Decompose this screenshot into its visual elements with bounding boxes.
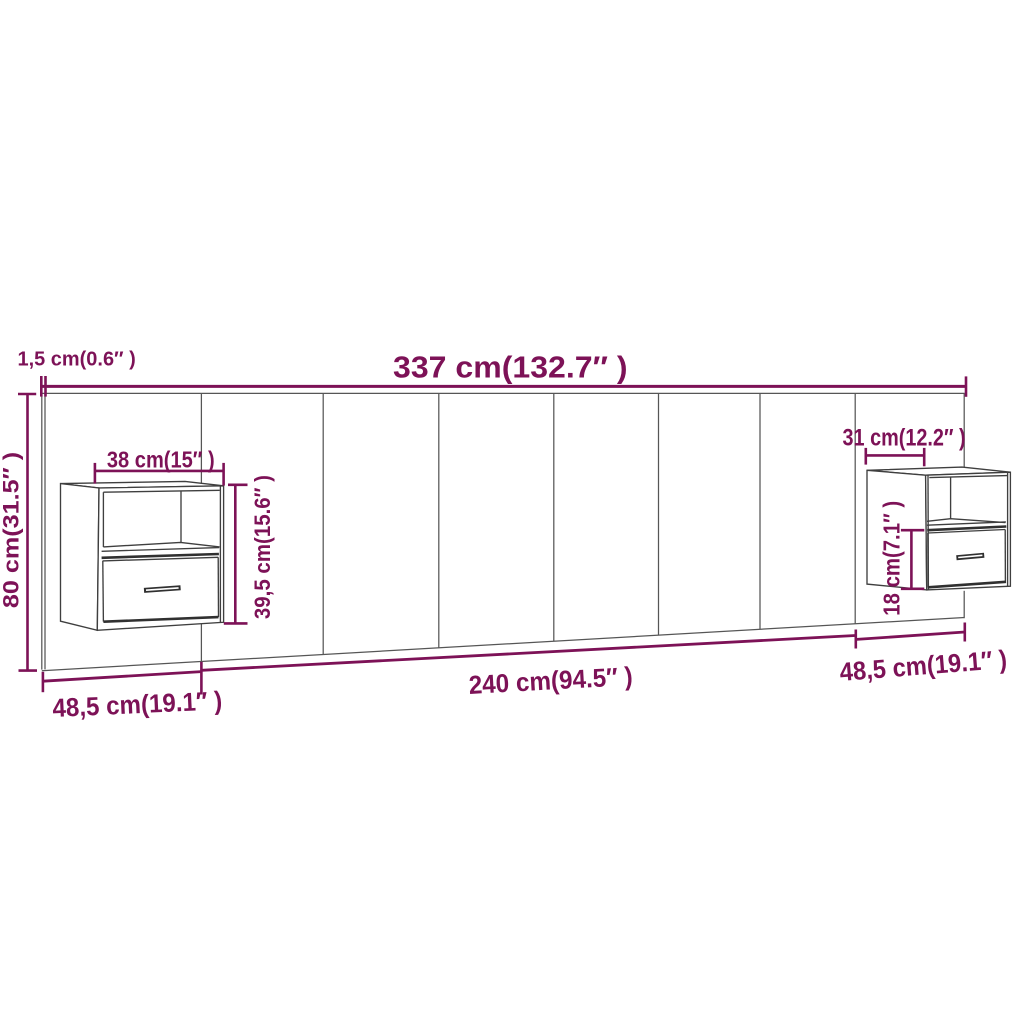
svg-text:31 cm(12.2″ ): 31 cm(12.2″ ) [843,424,966,451]
svg-text:1,5 cm(0.6″ ): 1,5 cm(0.6″ ) [18,348,136,370]
svg-text:18 cm(7.1″ ): 18 cm(7.1″ ) [879,501,905,616]
svg-text:337 cm(132.7″ ): 337 cm(132.7″ ) [393,350,628,385]
svg-text:39,5 cm(15.6″ ): 39,5 cm(15.6″ ) [250,475,275,619]
svg-text:38 cm(15″ ): 38 cm(15″ ) [107,447,215,473]
svg-text:80 cm(31.5″ ): 80 cm(31.5″ ) [0,452,24,608]
